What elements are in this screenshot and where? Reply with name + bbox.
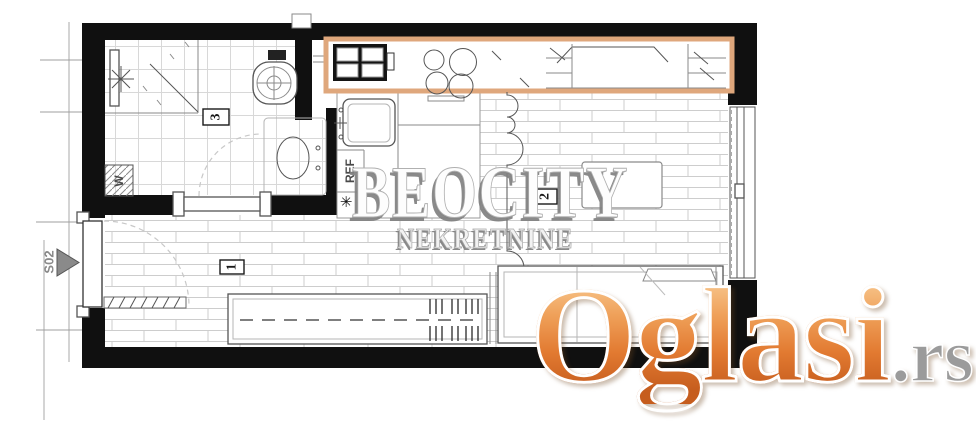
section-marker-label: S02 [42, 250, 57, 273]
door-mat [104, 297, 186, 308]
washing-machine-icon: W [105, 165, 133, 196]
window [728, 105, 757, 280]
washing-machine-label: W [112, 175, 126, 187]
kitchen-sink-icon [334, 99, 395, 146]
upper-cabinet-strip [326, 39, 732, 98]
watermark-agency-subtitle: NEKRETNINE [397, 224, 574, 256]
section-marker: S02 [42, 249, 80, 276]
bathroom-tile-floor-2 [295, 120, 326, 195]
floor-plan-image: W 3 REF ✳ [0, 0, 976, 426]
section-arrow-icon [57, 249, 79, 276]
kitchen-window-icon [333, 44, 394, 81]
entrance-door-leaf [83, 221, 102, 307]
boiler-symbol: ✳ [340, 193, 353, 211]
oglasi-logo-tld: .rs [891, 318, 973, 394]
duct-box [292, 14, 311, 28]
hallway-number-tag: 1 [220, 260, 244, 274]
svg-text:1: 1 [225, 264, 240, 271]
oglasi-logo-name: Oglasi [531, 268, 889, 404]
bathroom-number-tag: 3 [203, 109, 229, 125]
oglasi-logo: Oglasi .rs [531, 268, 974, 404]
svg-text:3: 3 [209, 114, 224, 121]
